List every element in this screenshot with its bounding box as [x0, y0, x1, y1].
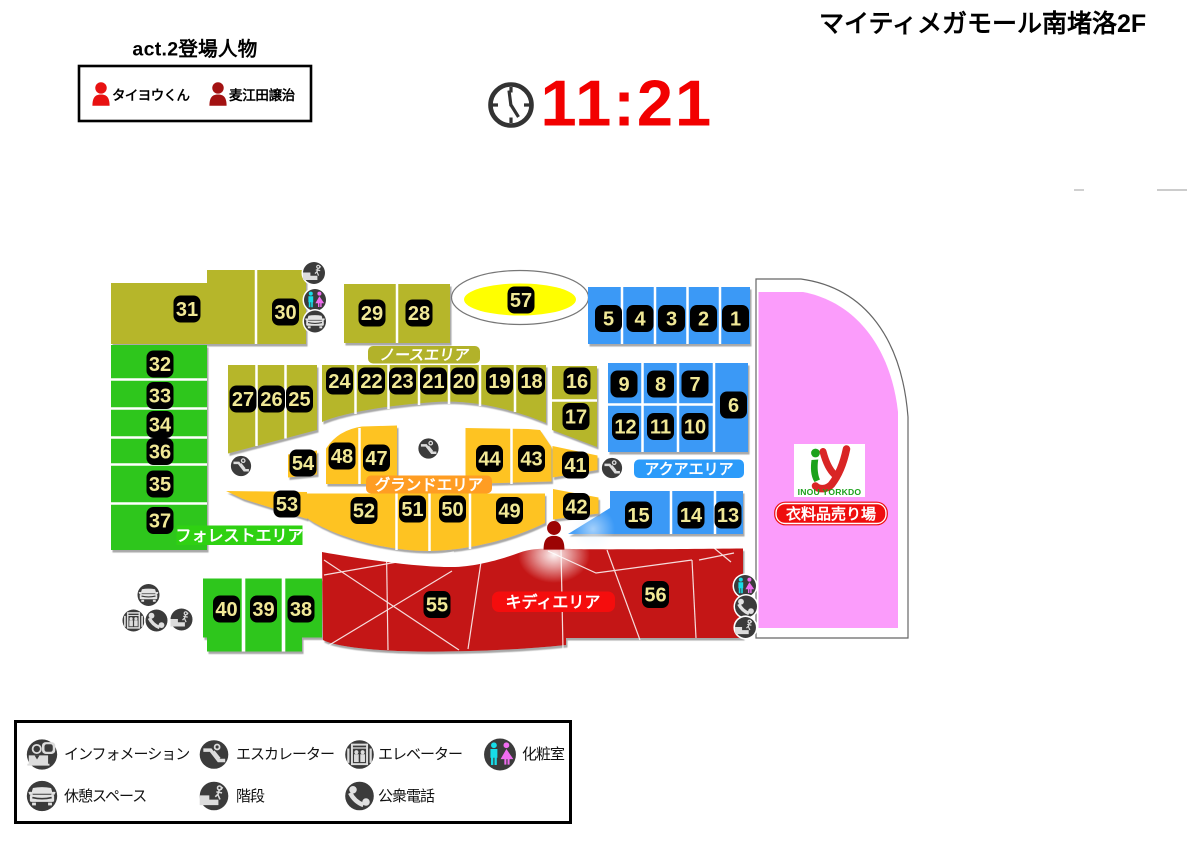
svg-text:タイヨウくん: タイヨウくん: [112, 88, 190, 103]
svg-text:48: 48: [331, 446, 353, 468]
svg-text:10: 10: [684, 417, 706, 439]
svg-text:化粧室: 化粧室: [522, 746, 565, 763]
svg-text:38: 38: [290, 599, 312, 621]
svg-text:43: 43: [520, 449, 542, 471]
svg-text:act.2登場人物: act.2登場人物: [132, 38, 257, 61]
svg-text:アクアエリア: アクアエリア: [644, 461, 733, 478]
svg-text:7: 7: [689, 374, 700, 396]
svg-text:28: 28: [408, 303, 430, 325]
svg-text:11:21: 11:21: [541, 67, 714, 140]
svg-text:39: 39: [252, 599, 274, 621]
svg-text:9: 9: [618, 374, 629, 396]
svg-text:17: 17: [565, 407, 587, 429]
svg-text:22: 22: [360, 371, 382, 393]
svg-text:麦江田譲治: 麦江田譲治: [229, 87, 296, 103]
svg-text:56: 56: [644, 585, 666, 607]
svg-text:42: 42: [565, 497, 587, 519]
svg-text:49: 49: [498, 501, 520, 523]
svg-text:31: 31: [176, 299, 198, 321]
svg-text:47: 47: [365, 448, 387, 470]
svg-text:インフォメーション: インフォメーション: [64, 746, 189, 763]
svg-text:33: 33: [149, 386, 171, 408]
svg-text:50: 50: [441, 499, 463, 521]
svg-text:休憩スペース: 休憩スペース: [64, 788, 146, 805]
svg-text:52: 52: [353, 501, 375, 523]
svg-text:23: 23: [391, 371, 413, 393]
svg-text:5: 5: [603, 309, 614, 331]
svg-text:53: 53: [276, 494, 298, 516]
svg-text:29: 29: [361, 303, 383, 325]
svg-text:1: 1: [730, 309, 741, 331]
svg-text:12: 12: [614, 417, 636, 439]
svg-text:11: 11: [650, 417, 671, 439]
svg-text:公衆電話: 公衆電話: [378, 788, 435, 805]
svg-text:26: 26: [260, 389, 282, 411]
svg-text:14: 14: [680, 505, 703, 527]
svg-text:エレベーター: エレベーター: [378, 746, 462, 763]
svg-text:8: 8: [655, 374, 666, 396]
svg-text:30: 30: [274, 302, 296, 324]
svg-text:35: 35: [149, 474, 171, 496]
svg-text:キディエリア: キディエリア: [506, 593, 601, 612]
svg-text:フォレストエリア: フォレストエリア: [175, 528, 303, 545]
svg-text:24: 24: [328, 371, 351, 393]
svg-text:6: 6: [728, 395, 739, 417]
svg-text:57: 57: [510, 290, 532, 312]
svg-text:18: 18: [520, 371, 542, 393]
svg-text:13: 13: [717, 505, 739, 527]
svg-text:44: 44: [478, 449, 501, 471]
svg-text:階段: 階段: [236, 788, 265, 805]
svg-text:ノースエリア: ノースエリア: [379, 347, 471, 364]
svg-text:19: 19: [488, 371, 510, 393]
svg-text:41: 41: [564, 455, 586, 477]
svg-text:衣料品売り場: 衣料品売り場: [786, 505, 876, 523]
svg-text:51: 51: [401, 499, 423, 521]
svg-text:40: 40: [215, 599, 237, 621]
svg-text:3: 3: [666, 309, 677, 331]
svg-text:25: 25: [288, 389, 310, 411]
svg-text:20: 20: [453, 371, 475, 393]
svg-text:15: 15: [627, 505, 649, 527]
svg-text:エスカレーター: エスカレーター: [236, 746, 334, 763]
svg-text:34: 34: [149, 415, 172, 437]
svg-text:16: 16: [566, 371, 588, 393]
svg-text:21: 21: [422, 371, 444, 393]
svg-text:グランドエリア: グランドエリア: [375, 475, 484, 494]
svg-text:4: 4: [634, 309, 646, 331]
svg-text:マイティメガモール南堵洛2F: マイティメガモール南堵洛2F: [819, 9, 1146, 38]
svg-text:37: 37: [149, 511, 171, 533]
svg-text:INOU YORKDO: INOU YORKDO: [798, 487, 862, 497]
svg-text:54: 54: [292, 453, 315, 475]
svg-text:55: 55: [426, 595, 448, 617]
svg-text:27: 27: [232, 389, 254, 411]
svg-text:32: 32: [149, 354, 171, 376]
svg-text:2: 2: [698, 309, 709, 331]
svg-text:36: 36: [149, 442, 171, 464]
